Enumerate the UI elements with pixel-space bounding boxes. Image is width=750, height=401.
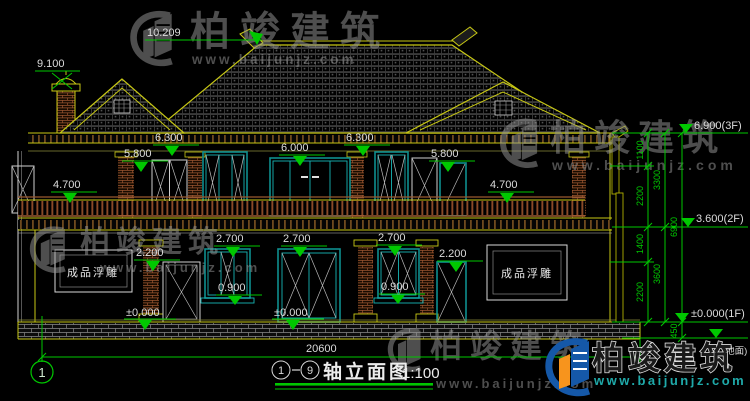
vdim-seg4: 2200: [635, 282, 645, 302]
building-elevation: 成品浮雕 成品浮雕: [12, 27, 640, 339]
svg-text:±0.000(1F): ±0.000(1F): [691, 308, 745, 320]
dim-sill-right: 0.900: [379, 281, 425, 304]
svg-text:6.300: 6.300: [346, 132, 374, 144]
svg-text:4.700: 4.700: [53, 179, 81, 191]
watermark-url: www.baijunjz.com: [191, 52, 357, 67]
svg-text:10.209: 10.209: [147, 27, 181, 39]
svg-text:2.200: 2.200: [439, 248, 467, 260]
dim-sill-left: 0.900: [216, 282, 262, 305]
relief-plaque-right-text: 成品浮雕: [501, 266, 553, 280]
svg-text:5.800: 5.800: [431, 148, 459, 160]
elevation-drawing: 成品浮雕 成品浮雕 柏竣建筑: [0, 0, 750, 401]
svg-text:±0.000: ±0.000: [126, 307, 160, 319]
vdim-total: 6900: [669, 217, 679, 237]
svg-text:4.700: 4.700: [490, 179, 518, 191]
svg-text:2.700: 2.700: [283, 233, 311, 245]
title-block: 1 9 轴立面图 1:100: [272, 360, 440, 389]
brand-logo-url: www.baijunjz.com: [593, 373, 746, 388]
dim-balcony-right: 4.700: [488, 179, 534, 203]
window: [374, 249, 423, 303]
svg-text:2.200: 2.200: [136, 247, 164, 259]
vdim-seg2: 2200: [635, 186, 645, 206]
vdim-seg5: 450: [669, 323, 679, 338]
svg-text:6.900(3F): 6.900(3F): [694, 120, 742, 132]
title-axis-end: 9: [307, 365, 313, 377]
vdim-sub1: 3300: [652, 170, 662, 190]
level-second-floor: 3.600(2F): [612, 213, 748, 227]
svg-text:2.700: 2.700: [216, 233, 244, 245]
svg-text:5.800: 5.800: [124, 148, 152, 160]
svg-text:6.000: 6.000: [281, 142, 309, 154]
gable-vent-left: [114, 100, 130, 113]
dim-f2-center-door: 6.000: [279, 142, 325, 166]
watermark-brand: 柏竣建筑: [190, 10, 390, 54]
relief-plaque-right: 成品浮雕: [487, 245, 567, 300]
gable-vent-right: [495, 101, 512, 115]
svg-text:20600: 20600: [306, 343, 337, 355]
balcony-railing: [18, 197, 585, 216]
svg-text:3.600(2F): 3.600(2F): [696, 213, 744, 225]
svg-text:0.900: 0.900: [381, 281, 409, 293]
svg-text:2.700: 2.700: [378, 232, 406, 244]
axis-bubble-label: 1: [38, 365, 45, 380]
roof-finial-right: [452, 27, 477, 46]
watermark-url: www.baijunjz.com: [99, 260, 260, 275]
svg-text:±0.000: ±0.000: [274, 307, 308, 319]
title-axis-start: 1: [278, 365, 284, 377]
svg-text:6.300: 6.300: [155, 132, 183, 144]
cad-elevation-screenshot: 成品浮雕 成品浮雕 柏竣建筑: [0, 0, 750, 401]
vdim-seg3: 1400: [635, 234, 645, 254]
door: [437, 262, 466, 322]
svg-text:0.900: 0.900: [218, 282, 246, 294]
dim-balcony-left: 4.700: [51, 179, 97, 203]
brand-logo-name: 柏竣建筑: [592, 340, 736, 376]
drawing-scale: 1:100: [402, 365, 440, 382]
svg-text:9.100: 9.100: [37, 58, 65, 70]
dim-f1-door-right-top: 2.200: [437, 248, 483, 272]
vdim-sub2: 3600: [652, 264, 662, 284]
drawing-title: 轴立面图: [323, 360, 411, 383]
vdim-seg1: 1100: [635, 140, 645, 159]
